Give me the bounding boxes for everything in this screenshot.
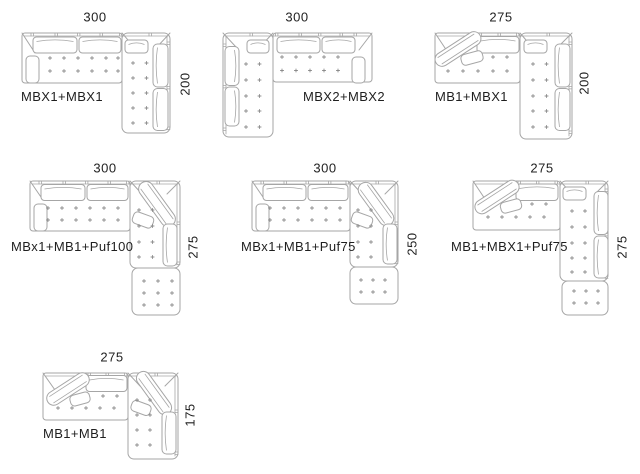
config-name-mb1-mbx1: MB1+MBX1 [435,90,508,103]
depth-dimension-mb1-mbx1-puf75: 275 [616,235,629,258]
width-dimension-mbx1-mbx1: 300 [83,11,106,24]
width-dimension-mb1-mbx1: 275 [489,11,512,24]
config-name-mbx2-mbx2: MBX2+MBX2 [303,90,385,103]
config-name-mbx1-mb1-puf75: MBx1+MB1+Puf75 [241,240,356,253]
depth-dimension-mb1-mb1: 175 [184,403,197,426]
width-dimension-mbx1-mb1-puf100: 300 [93,162,116,175]
config-name-mb1-mb1: MB1+MB1 [43,427,107,440]
sofa-configuration-sheet: 300 200 MBX1+MBX1 300 MBX2+MBX2 275 200 … [0,0,640,474]
sofa-drawing-mbx1-mbx1 [22,33,170,133]
sofa-drawing-mb1-mb1 [43,369,178,459]
width-dimension-mbx1-mb1-puf75: 300 [313,162,336,175]
config-name-mbx1-mbx1: MBX1+MBX1 [21,90,103,103]
width-dimension-mbx2-mbx2: 300 [285,11,308,24]
width-dimension-mb1-mb1: 275 [100,351,123,364]
depth-dimension-mbx1-mbx1: 200 [179,72,192,95]
sofa-drawing-mbx2-mbx2 [223,33,372,137]
width-dimension-mb1-mbx1-puf75: 275 [530,162,553,175]
depth-dimension-mbx1-mb1-puf100: 275 [187,235,200,258]
depth-dimension-mbx1-mb1-puf75: 250 [406,232,419,255]
config-name-mbx1-mb1-puf100: MBx1+MB1+Puf100 [11,240,133,253]
depth-dimension-mb1-mbx1: 200 [578,71,591,94]
sofa-drawing-mb1-mbx1 [432,29,572,139]
config-name-mb1-mbx1-puf75: MB1+MBX1+Puf75 [451,240,568,253]
sofa-diagrams-canvas [0,0,640,474]
